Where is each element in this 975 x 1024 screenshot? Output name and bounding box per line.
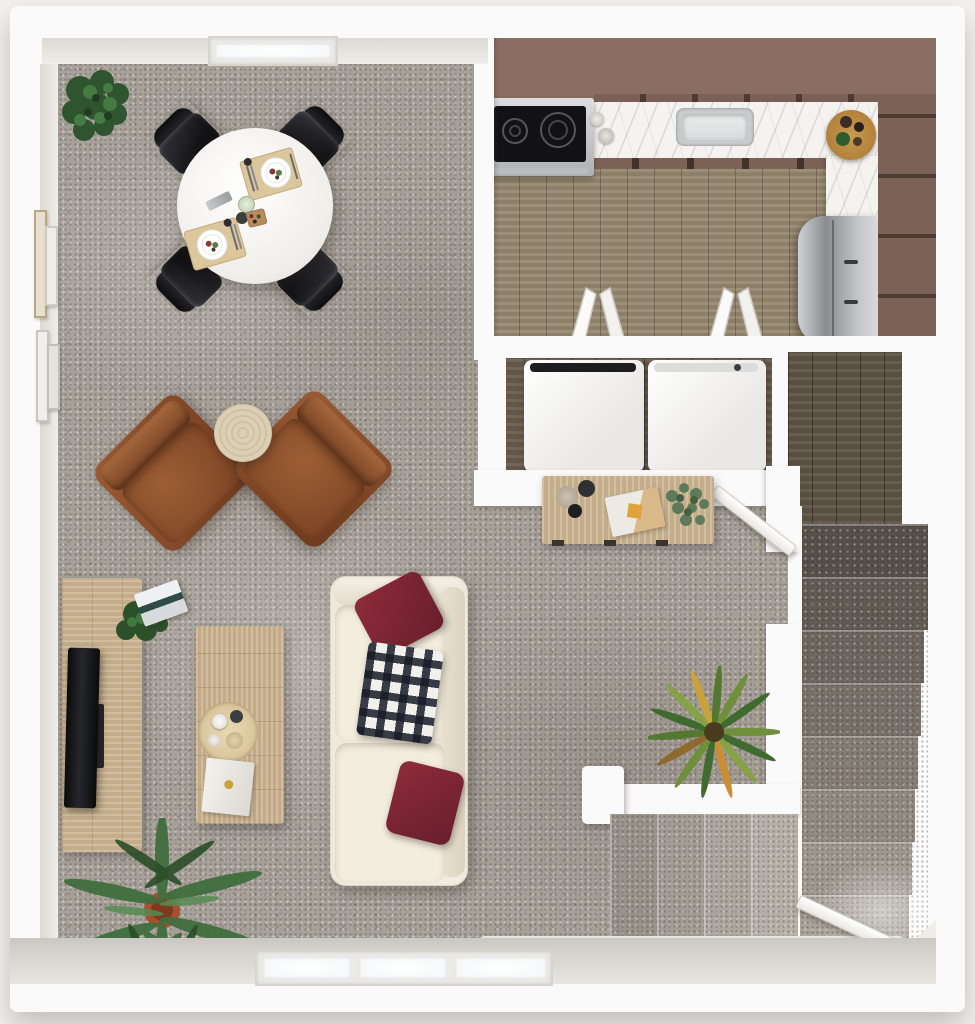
laundry-left-jamb — [492, 356, 506, 476]
wall-art-frame — [47, 344, 60, 410]
bottom-wall — [10, 984, 965, 1012]
dryer — [648, 360, 766, 472]
coffee-table-book — [201, 758, 254, 817]
fridge-handle — [844, 300, 858, 304]
staircase — [800, 524, 930, 948]
stove-handle — [492, 168, 588, 174]
entry-steps — [610, 814, 798, 948]
entry-step — [704, 814, 751, 948]
left-wall — [10, 6, 42, 1012]
stair-hall-floor — [788, 352, 904, 524]
fridge-handle — [844, 260, 858, 264]
right-wall — [936, 6, 965, 1012]
stair-step — [800, 789, 915, 842]
bottom-window — [255, 950, 553, 986]
stair-step — [800, 577, 930, 630]
burner-icon — [540, 112, 576, 148]
side-table — [214, 404, 272, 462]
base-cabinet-handles — [584, 158, 826, 169]
serving-board — [826, 110, 876, 160]
entry-step — [657, 814, 704, 948]
floor-plan-canvas — [0, 0, 975, 1024]
stair-step — [800, 842, 912, 895]
desk-mug — [578, 480, 595, 497]
entry-step — [751, 814, 798, 948]
refrigerator — [798, 216, 878, 344]
fiddle-plant — [50, 60, 146, 156]
stair-step — [800, 524, 930, 577]
counter-bowl — [590, 112, 604, 126]
sofa-checkered-throw — [356, 641, 444, 745]
kitchen-right-cabinets — [878, 94, 938, 354]
tv — [64, 648, 100, 809]
yucca-plant — [648, 666, 780, 798]
desk-mug — [568, 504, 582, 518]
coffee-tray — [198, 702, 258, 762]
stair-step — [800, 630, 924, 683]
counter-bowl — [598, 128, 614, 144]
top-window — [208, 36, 338, 66]
stair-step — [800, 683, 921, 736]
kitchen-divider-wall — [474, 36, 494, 356]
stove — [486, 98, 594, 176]
washer — [524, 360, 644, 472]
burner-icon — [502, 118, 528, 144]
kitchen-sink — [676, 108, 754, 146]
top-wall — [10, 6, 965, 38]
wall-art-frame — [45, 226, 58, 306]
hall-right-wall — [902, 340, 940, 524]
entry-step — [610, 814, 657, 948]
stair-step — [800, 736, 918, 789]
left-wall-face — [40, 64, 58, 940]
desk-plant — [642, 468, 722, 546]
